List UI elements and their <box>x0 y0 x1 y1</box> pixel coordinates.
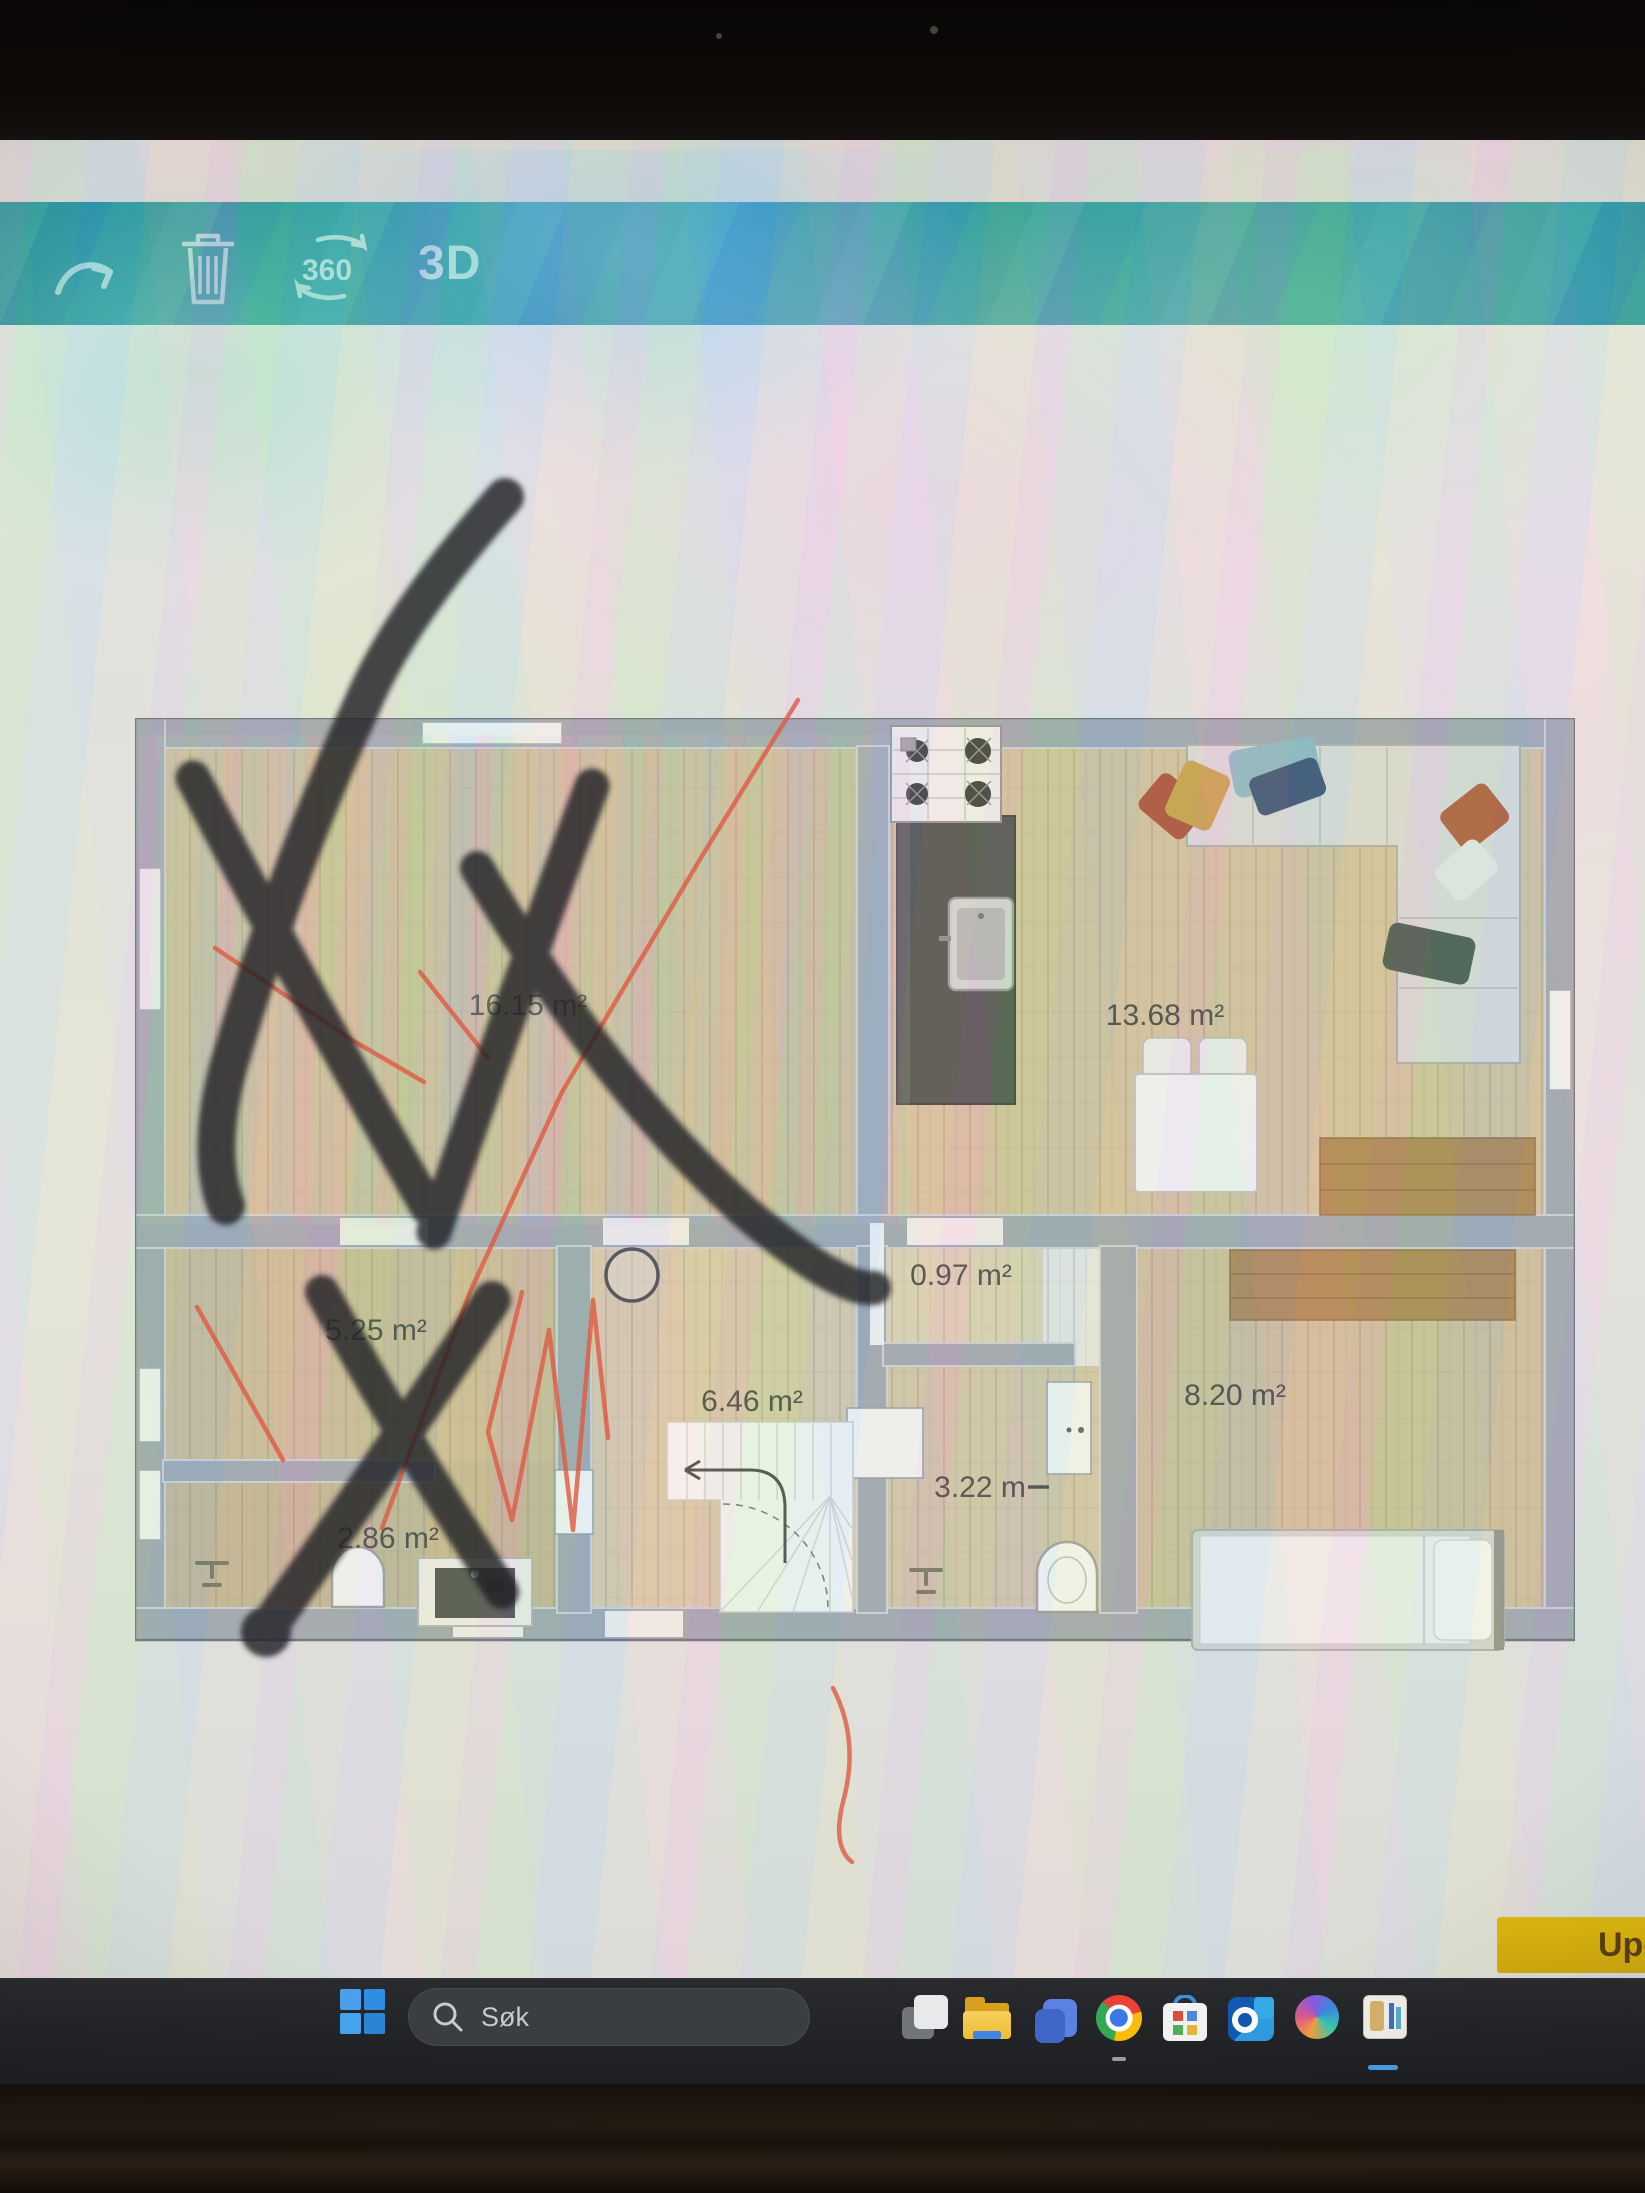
bezel-reflection-dot <box>930 26 938 34</box>
laptop-top-bezel <box>0 0 1645 140</box>
microsoft-store-icon[interactable] <box>1161 1995 1207 2041</box>
windows-taskbar: 55 <box>0 1978 1645 2084</box>
outlook-icon[interactable] <box>1228 1995 1274 2041</box>
start-button[interactable] <box>340 1989 390 2037</box>
task-view-icon[interactable] <box>902 1995 948 2041</box>
taskbar-search[interactable] <box>408 1988 810 2046</box>
chrome-active-indicator <box>1112 2057 1126 2061</box>
teams-icon[interactable] <box>1035 1995 1081 2041</box>
copilot-icon[interactable] <box>1295 1995 1339 2039</box>
black-marker-x-strokes <box>193 497 874 1657</box>
screen-photo: 360 3D <box>0 0 1645 2193</box>
file-explorer-icon[interactable] <box>963 1995 1009 2041</box>
floor-plan-app-icon[interactable] <box>1363 1995 1409 2041</box>
search-input[interactable] <box>479 2001 759 2034</box>
chrome-icon[interactable] <box>1096 1995 1142 2041</box>
laptop-base <box>0 2084 1645 2193</box>
search-icon <box>431 2000 465 2034</box>
marker-annotations <box>0 0 1645 2193</box>
active-app-indicator <box>1368 2065 1398 2070</box>
bezel-reflection-dot <box>716 33 722 39</box>
